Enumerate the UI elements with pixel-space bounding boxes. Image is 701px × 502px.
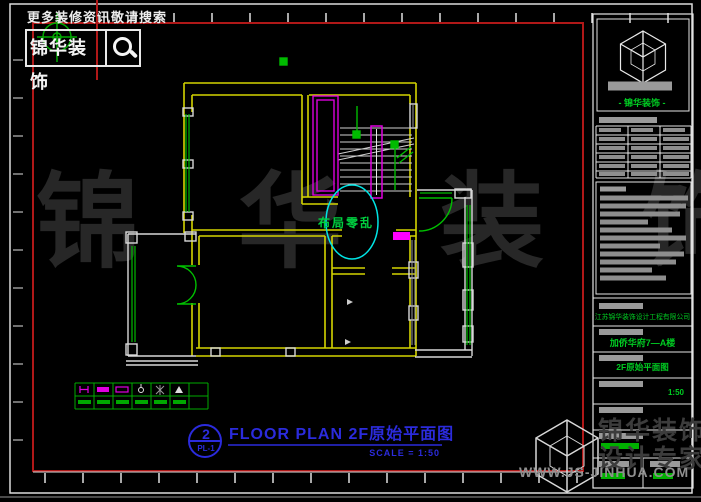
ceiling-fixture-symbol: [156, 385, 164, 395]
sheet-title: FLOOR PLAN 2F原始平面图: [229, 420, 454, 444]
pendant-lamp-symbol: [139, 384, 144, 393]
cad-sheet: 锦 华 装 饰: [0, 0, 701, 502]
sheet-reference: PL-1: [189, 444, 223, 453]
outlet-box-symbol: [116, 387, 128, 392]
titleblock-drawing-name: 2F原始平面图: [594, 361, 691, 373]
watermark-cube-logo: [536, 420, 598, 492]
floor-drain-icons: [345, 299, 353, 345]
titleblock-brand: - 锦华装饰 -: [596, 96, 688, 109]
balcony-door-arc: [419, 198, 452, 231]
watermark-url: WWW.JS-JINHUA.COM: [519, 464, 689, 480]
titleblock-company: 江苏锦华装饰设计工程有限公司: [594, 311, 691, 321]
titleblock-project: 加侨华府7—A楼: [594, 336, 691, 349]
basin-fixture: [393, 232, 410, 240]
balcony-walls: [126, 104, 473, 365]
wardrobe: [313, 96, 338, 195]
brand-search-box[interactable]: 锦华装饰: [25, 29, 141, 67]
company-cube-logo: [621, 31, 666, 83]
plan-annotation-text: 布局零乱: [318, 214, 388, 231]
brand-logo-text: 锦华装饰: [27, 31, 105, 65]
search-hint-text: 更多装修资讯敬请搜索: [27, 7, 167, 26]
floor-plan: [126, 58, 473, 365]
light-strip-symbol: [97, 387, 109, 392]
switch-symbol: [80, 386, 88, 393]
ruler-ticks-left: [13, 60, 23, 440]
legend-table: [75, 383, 208, 409]
red-border: [33, 23, 583, 471]
window-glass-lines: [412, 104, 415, 345]
sheet-scale: SCALE = 1:50: [352, 448, 440, 458]
valve-flag-symbol: [175, 386, 183, 393]
search-icon[interactable]: [107, 31, 139, 65]
double-door: [177, 266, 196, 304]
sheet-number: 2: [195, 426, 217, 442]
stair-handrail: [371, 126, 382, 198]
ruler-ticks-bottom: [45, 473, 577, 483]
titleblock-scale: 1:50: [594, 388, 684, 397]
